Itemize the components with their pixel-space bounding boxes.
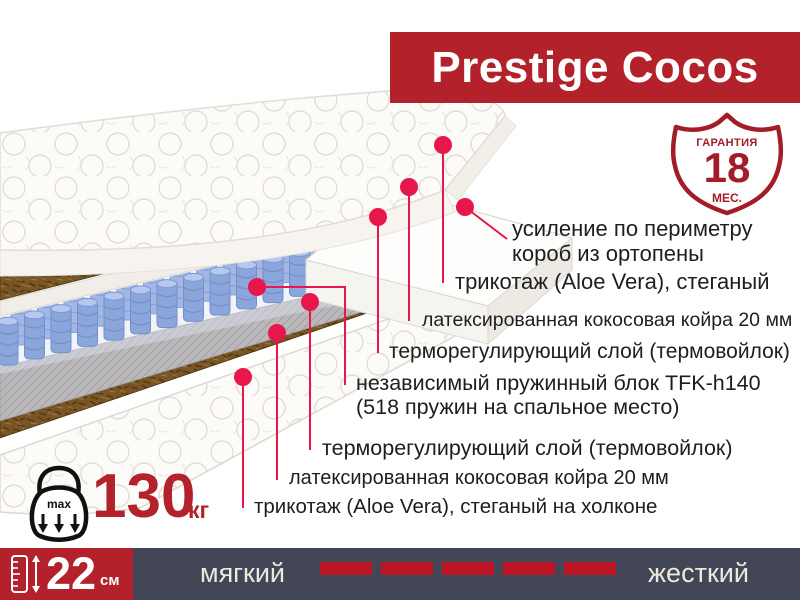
firmness-hard-label: жесткий [648,558,749,589]
layer-label-bottom-cover: трикотаж (Aloe Vera), стеганый на холкон… [254,494,657,519]
callout-dot-springs [248,278,266,296]
title-banner: Prestige Cocos [390,32,800,103]
layer-label-top-cover: трикотаж (Aloe Vera), стеганый [455,269,770,294]
callout-dot-bottom-cover [234,368,252,386]
footer-bar: 22 см мягкий жесткий [0,548,800,600]
firmness-dash [320,562,372,575]
firmness-dash [381,562,433,575]
warranty-unit: МЕС. [685,191,769,205]
height-block: 22 см [0,548,133,600]
product-title: Prestige Cocos [431,43,758,93]
layer-label-thermofelt-top: терморегулирующий слой (термовойлок) [389,339,790,364]
ruler-icon [10,554,44,594]
kettlebell-max-label: max [35,497,83,511]
firmness-dash [564,562,616,575]
layer-label-coir-top: латексированная кокосовая койра 20 мм [422,308,792,333]
max-weight-unit: кг [188,497,209,524]
firmness-dash [503,562,555,575]
height-unit: см [100,572,119,589]
product-infographic: Prestige Cocos ГАРАНТИЯ 18 МЕС. усиление… [0,0,800,600]
firmness-dash [442,562,494,575]
height-arrow-icon [32,555,40,593]
callout-dot-coir-bottom [268,324,286,342]
max-weight-value: 130 [92,468,195,526]
callout-dot-thermofelt-top [369,208,387,226]
callout-dot-perimeter-box [456,198,474,216]
callout-dot-coir-top [400,178,418,196]
callout-dot-thermofelt-bottom [301,293,319,311]
layer-label-coir-bottom: латексированная кокосовая койра 20 мм [289,466,669,491]
height-value: 22 [46,550,96,598]
firmness-soft-label: мягкий [200,558,285,589]
firmness-scale [320,562,616,575]
warranty-value: 18 [685,146,769,190]
layer-label-perimeter-box: усиление по периметру короб из ортопены [512,216,753,266]
layer-label-thermofelt-bottom: терморегулирующий слой (термовойлок) [322,436,732,461]
callout-dot-top-cover [434,136,452,154]
layer-label-springs: независимый пружинный блок TFK-h140 (518… [356,371,761,419]
